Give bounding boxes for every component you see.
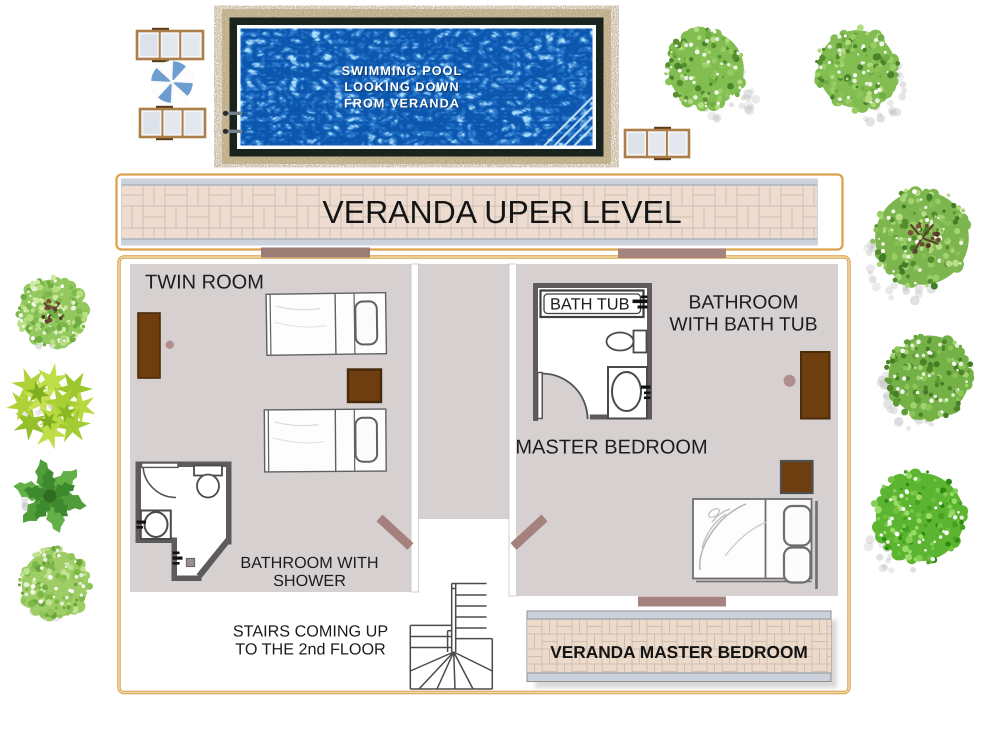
svg-text:BATH TUB: BATH TUB [550,296,630,314]
svg-text:FROM VERANDA: FROM VERANDA [344,96,460,110]
svg-text:WITH BATH TUB: WITH BATH TUB [669,315,817,336]
svg-text:VERANDA MASTER BEDROOM: VERANDA MASTER BEDROOM [550,642,808,662]
svg-text:TO THE 2nd FLOOR: TO THE 2nd FLOOR [235,641,386,659]
svg-text:SWIMMING POOL: SWIMMING POOL [342,64,463,78]
svg-text:MASTER BEDROOM: MASTER BEDROOM [515,437,707,459]
svg-text:STAIRS COMING UP: STAIRS COMING UP [233,623,388,641]
svg-text:SHOWER: SHOWER [273,572,346,590]
svg-text:BATHROOM WITH: BATHROOM WITH [240,554,378,572]
svg-text:TWIN ROOM: TWIN ROOM [145,272,264,294]
svg-text:BATHROOM: BATHROOM [689,293,799,314]
svg-text:VERANDA UPER LEVEL: VERANDA UPER LEVEL [322,194,681,230]
svg-text:LOOKING DOWN: LOOKING DOWN [344,80,459,94]
